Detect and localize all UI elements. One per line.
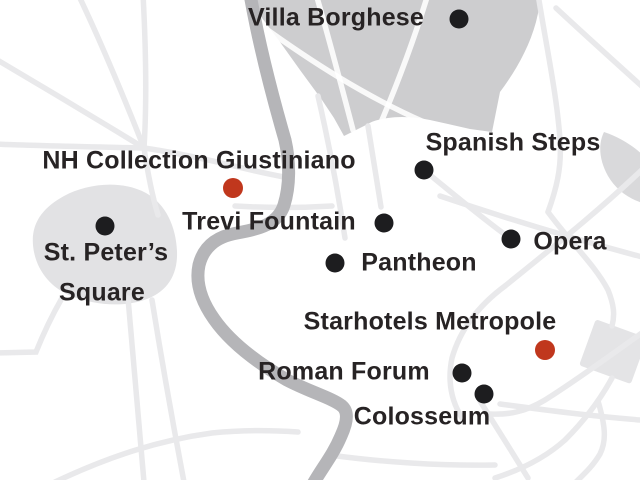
nh-collection-giustiniano-marker-dot[interactable] bbox=[223, 178, 243, 198]
st-peters-square-marker-dot[interactable] bbox=[96, 217, 115, 236]
spanish-steps-label: Spanish Steps bbox=[426, 131, 601, 156]
starhotels-metropole-marker-dot[interactable] bbox=[535, 340, 555, 360]
opera-label: Opera bbox=[533, 230, 606, 255]
villa-borghese-label: Villa Borghese bbox=[248, 6, 424, 31]
poi-markers-layer: Villa BorgheseNH Collection GiustinianoS… bbox=[0, 0, 640, 480]
villa-borghese-marker-dot[interactable] bbox=[450, 10, 469, 29]
colosseum-label: Colosseum bbox=[354, 405, 491, 430]
st-peters-square-label: Square bbox=[59, 281, 145, 306]
trevi-fountain-label: Trevi Fountain bbox=[182, 210, 356, 235]
nh-collection-giustiniano-label: NH Collection Giustiniano bbox=[42, 149, 355, 174]
rome-map: Villa BorgheseNH Collection GiustinianoS… bbox=[0, 0, 640, 480]
colosseum-marker-dot[interactable] bbox=[475, 385, 494, 404]
trevi-fountain-marker-dot[interactable] bbox=[375, 214, 394, 233]
pantheon-marker-dot[interactable] bbox=[326, 254, 345, 273]
roman-forum-marker-dot[interactable] bbox=[453, 364, 472, 383]
st-peters-square-label: St. Peter’s bbox=[44, 241, 168, 266]
opera-marker-dot[interactable] bbox=[502, 230, 521, 249]
spanish-steps-marker-dot[interactable] bbox=[415, 161, 434, 180]
starhotels-metropole-label: Starhotels Metropole bbox=[304, 310, 557, 335]
roman-forum-label: Roman Forum bbox=[258, 360, 430, 385]
pantheon-label: Pantheon bbox=[361, 251, 477, 276]
